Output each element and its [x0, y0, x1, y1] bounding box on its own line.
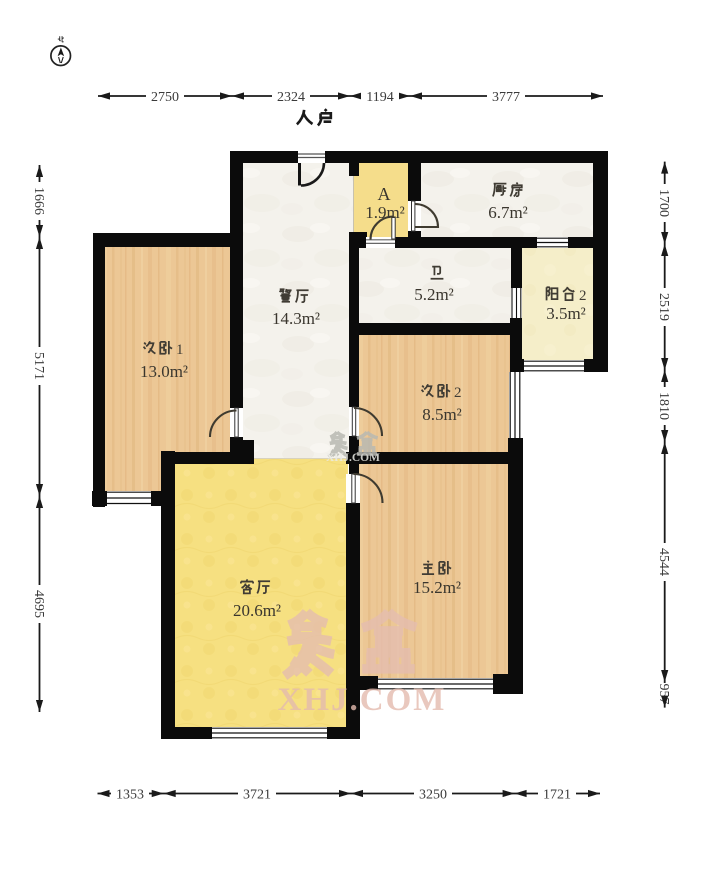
svg-text:6.7m²: 6.7m²: [488, 203, 528, 222]
svg-text:2324: 2324: [277, 90, 305, 105]
svg-text:3777: 3777: [492, 90, 520, 105]
svg-text:3.5m²: 3.5m²: [546, 304, 586, 323]
svg-text:4544: 4544: [656, 548, 671, 576]
svg-text:1810: 1810: [656, 392, 671, 420]
svg-text:XHJ.COM: XHJ.COM: [326, 452, 380, 464]
svg-text:3250: 3250: [419, 788, 447, 803]
svg-text:2519: 2519: [656, 293, 671, 321]
svg-text:2: 2: [454, 385, 462, 401]
svg-text:4695: 4695: [31, 590, 46, 618]
svg-text:13.0m²: 13.0m²: [140, 362, 188, 381]
svg-text:A: A: [378, 184, 391, 204]
svg-text:1721: 1721: [543, 788, 571, 803]
svg-text:2: 2: [579, 288, 587, 304]
svg-text:20.6m²: 20.6m²: [233, 601, 281, 620]
svg-text:1194: 1194: [366, 90, 393, 105]
svg-text:1700: 1700: [656, 189, 671, 217]
svg-text:1: 1: [176, 342, 184, 358]
svg-text:3721: 3721: [243, 788, 271, 803]
svg-text:1353: 1353: [116, 788, 144, 803]
svg-text:2750: 2750: [151, 90, 179, 105]
svg-text:XHJ.COM: XHJ.COM: [278, 682, 447, 718]
svg-text:14.3m²: 14.3m²: [272, 309, 320, 328]
svg-text:5171: 5171: [31, 352, 46, 380]
svg-text:15.2m²: 15.2m²: [413, 578, 461, 597]
svg-text:1666: 1666: [31, 187, 46, 215]
svg-text:5.2m²: 5.2m²: [414, 285, 454, 304]
svg-text:8.5m²: 8.5m²: [422, 405, 462, 424]
svg-text:1.9m²: 1.9m²: [365, 203, 405, 222]
